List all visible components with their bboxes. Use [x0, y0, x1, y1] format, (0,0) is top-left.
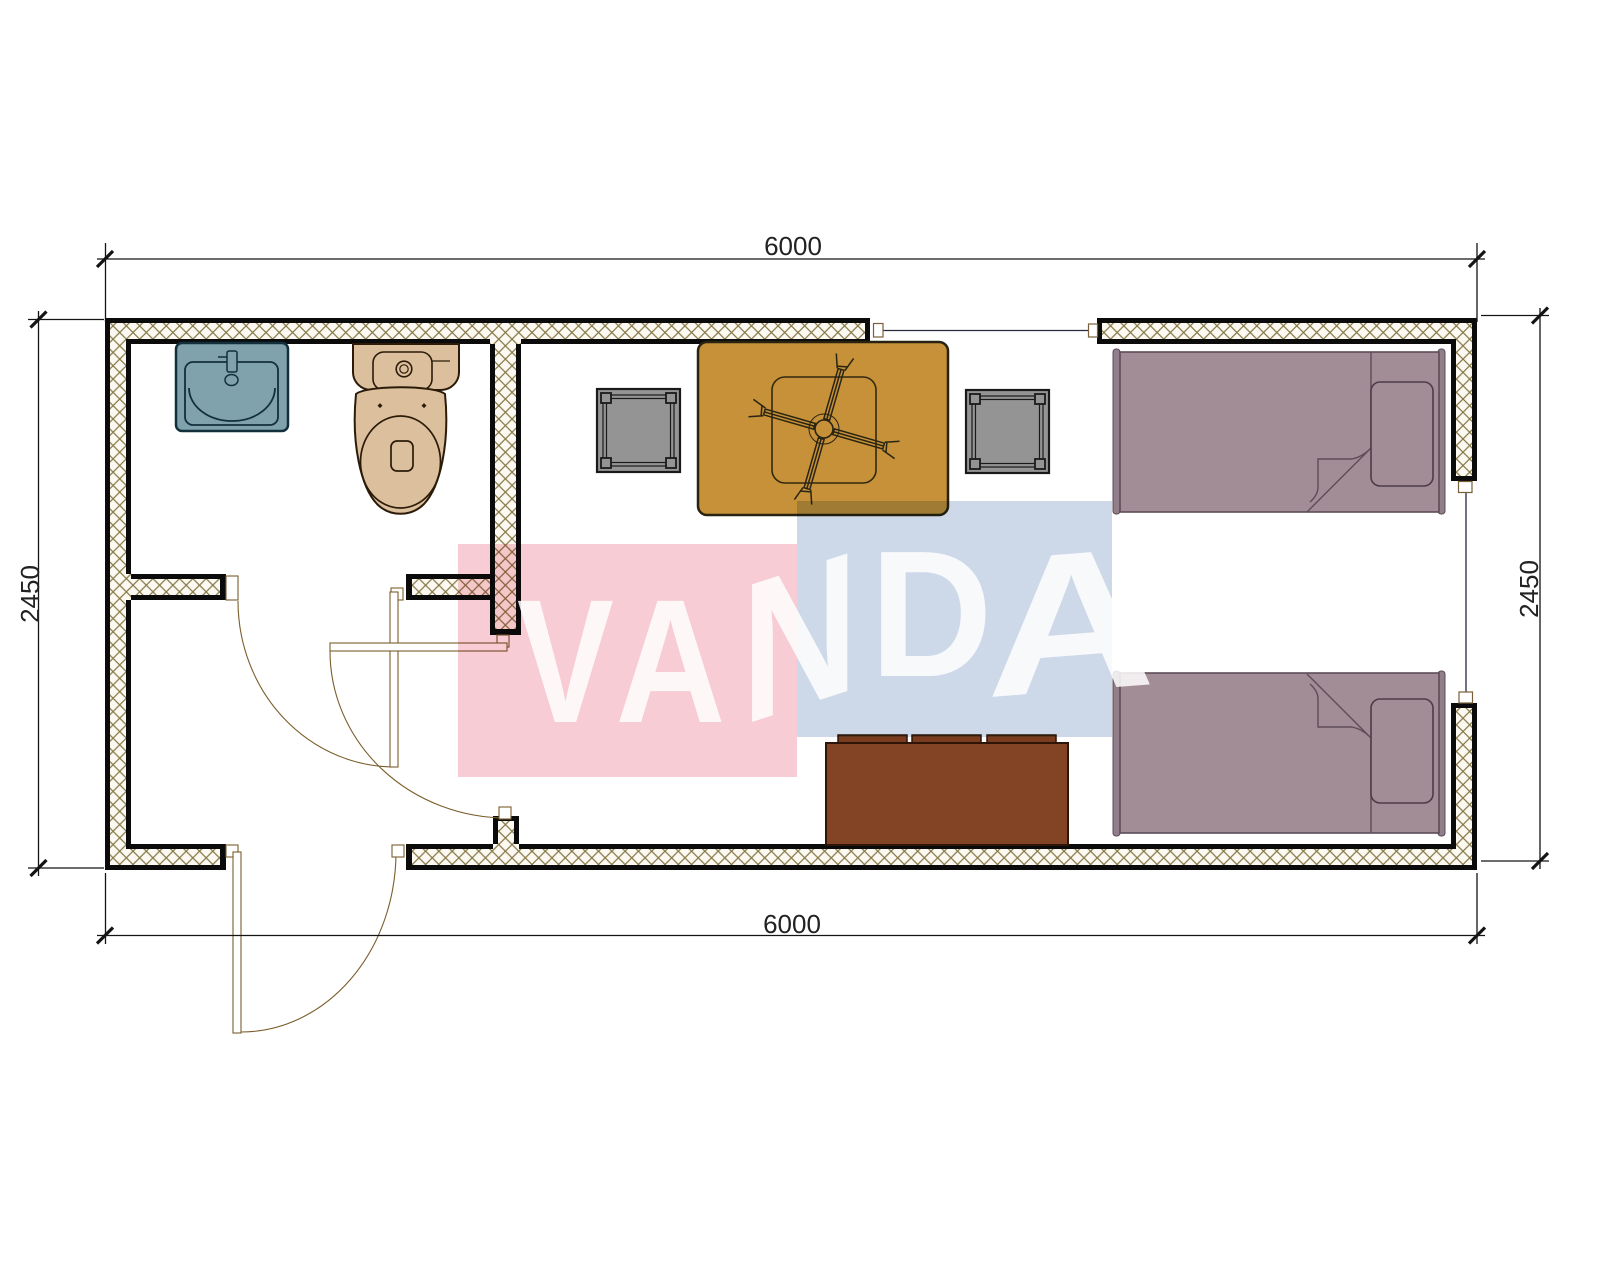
- svg-text:D: D: [870, 514, 993, 715]
- svg-text:2450: 2450: [1514, 560, 1544, 618]
- svg-text:A: A: [986, 505, 1156, 740]
- svg-text:6000: 6000: [764, 231, 822, 261]
- svg-text:V: V: [517, 564, 614, 760]
- svg-text:N: N: [741, 508, 858, 769]
- svg-text:A: A: [615, 563, 725, 760]
- svg-text:6000: 6000: [763, 909, 821, 939]
- svg-text:2450: 2450: [15, 565, 45, 623]
